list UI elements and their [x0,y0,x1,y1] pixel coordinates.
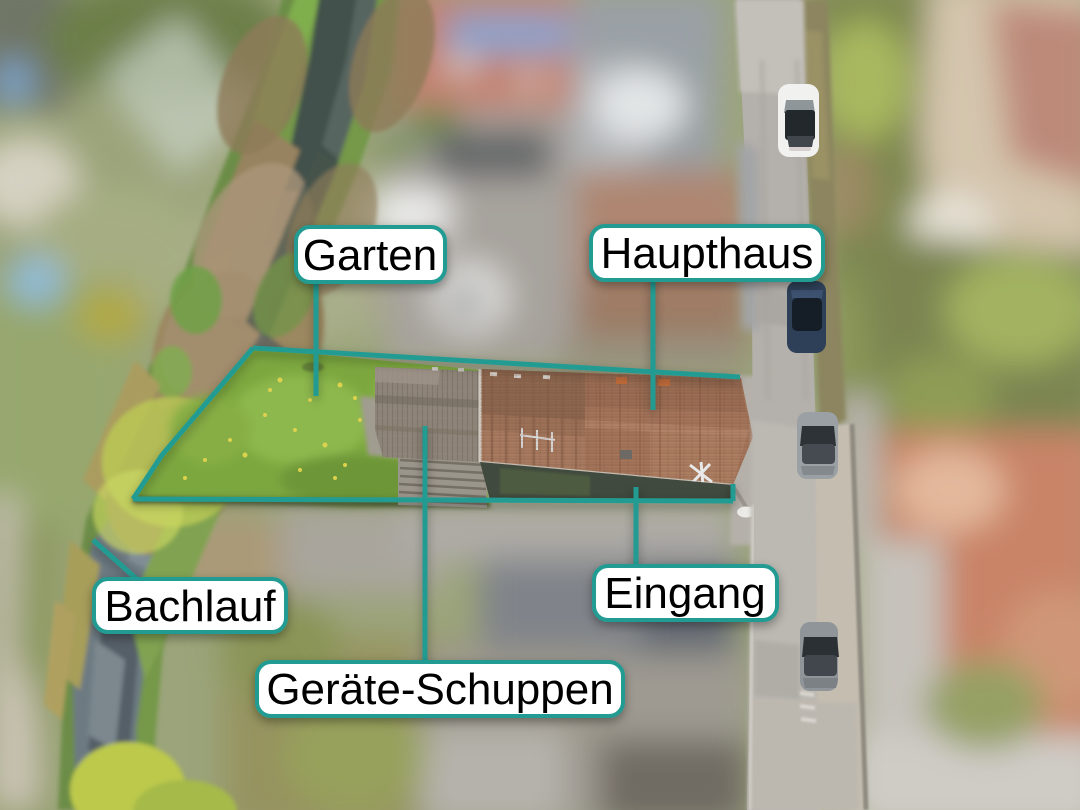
svg-text:Geräte-Schuppen: Geräte-Schuppen [266,665,613,714]
svg-text:Bachlauf: Bachlauf [104,582,276,631]
svg-text:Eingang: Eingang [604,569,765,618]
svg-text:Garten: Garten [303,231,438,280]
svg-text:Haupthaus: Haupthaus [601,229,814,278]
